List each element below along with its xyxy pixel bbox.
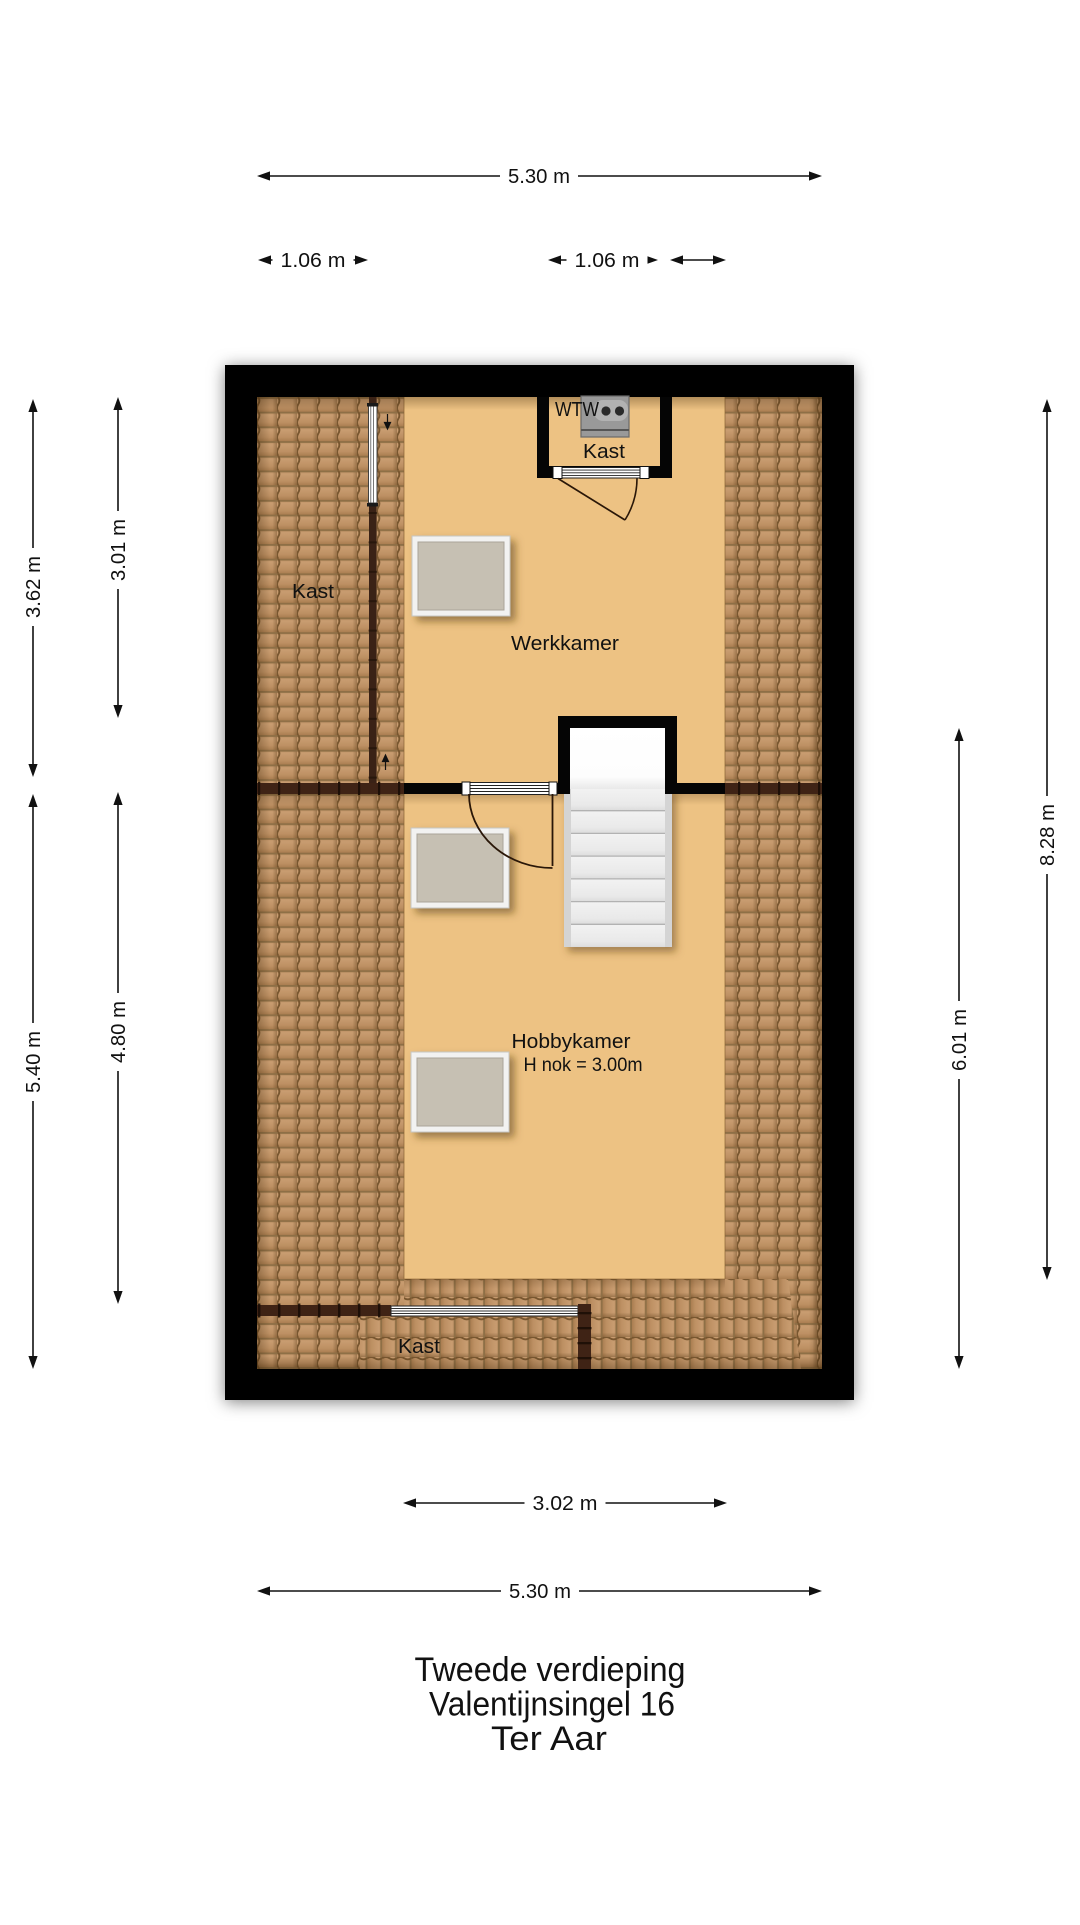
svg-text:1.06 m: 1.06 m: [281, 250, 346, 272]
svg-text:3.02 m: 3.02 m: [533, 1493, 598, 1515]
svg-text:Hobbykamer: Hobbykamer: [512, 1031, 631, 1053]
svg-text:1.06 m: 1.06 m: [575, 250, 640, 272]
svg-text:Werkkamer: Werkkamer: [511, 633, 619, 655]
svg-text:3.01 m: 3.01 m: [108, 519, 130, 581]
svg-text:5.30 m: 5.30 m: [508, 166, 570, 188]
svg-text:Kast: Kast: [583, 441, 625, 463]
svg-text:Ter Aar: Ter Aar: [491, 1720, 607, 1758]
svg-text:5.30 m: 5.30 m: [509, 1581, 571, 1603]
svg-text:5.40 m: 5.40 m: [23, 1031, 45, 1093]
svg-text:6.01 m: 6.01 m: [949, 1009, 971, 1071]
svg-text:Kast: Kast: [398, 1336, 440, 1358]
svg-text:Valentijnsingel 16: Valentijnsingel 16: [429, 1686, 675, 1724]
svg-text:Tweede verdieping: Tweede verdieping: [415, 1651, 686, 1689]
svg-text:3.62 m: 3.62 m: [23, 556, 45, 618]
svg-text:Kast: Kast: [292, 581, 334, 603]
svg-text:8.28 m: 8.28 m: [1037, 804, 1059, 866]
svg-text:4.80 m: 4.80 m: [108, 1001, 130, 1063]
svg-text:H nok = 3.00m: H nok = 3.00m: [524, 1055, 643, 1076]
svg-text:WTW: WTW: [555, 399, 599, 421]
